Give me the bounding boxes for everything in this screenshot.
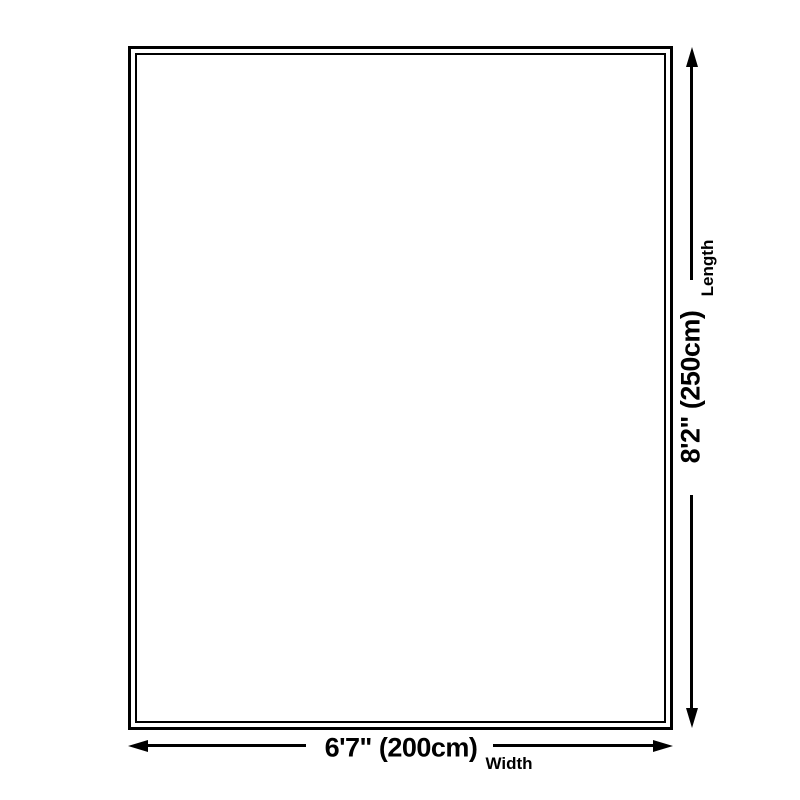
rug-inner-outline — [135, 53, 666, 723]
length-dimension-line-top — [690, 65, 693, 280]
length-label: Length — [698, 240, 718, 297]
arrow-left-icon — [128, 740, 148, 752]
width-dimension-line-right — [493, 744, 654, 747]
length-value: 8'2" (250cm) — [676, 311, 707, 464]
width-label: Width — [485, 754, 532, 774]
arrow-down-icon — [686, 708, 698, 728]
rug-outline — [128, 46, 673, 730]
arrow-right-icon — [653, 740, 673, 752]
length-dimension-line-bottom — [690, 495, 693, 709]
size-diagram: 6'7" (200cm) Width Length 8'2" (250cm) — [0, 0, 800, 800]
arrow-up-icon — [686, 47, 698, 67]
width-dimension-line-left — [146, 744, 306, 747]
width-value: 6'7" (200cm) — [325, 733, 478, 764]
